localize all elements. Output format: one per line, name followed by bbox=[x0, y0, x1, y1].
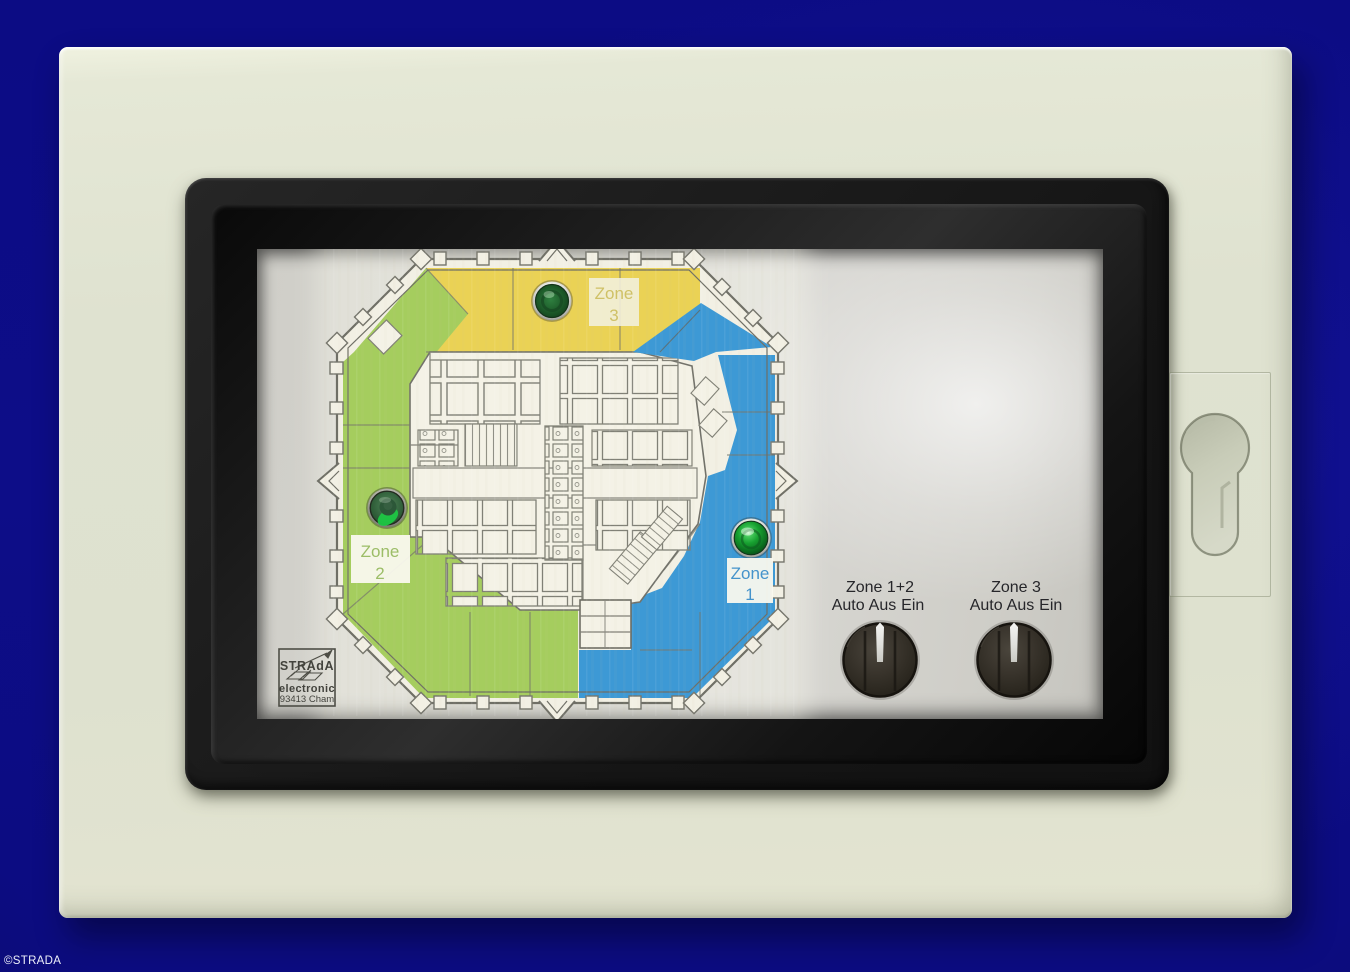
svg-text:Zone: Zone bbox=[595, 284, 634, 303]
svg-text:Zone: Zone bbox=[361, 542, 400, 561]
svg-text:93413 Cham: 93413 Cham bbox=[280, 694, 334, 705]
svg-text:1: 1 bbox=[745, 585, 754, 604]
svg-text:Zone 3: Zone 3 bbox=[991, 579, 1041, 596]
svg-text:Zone: Zone bbox=[731, 564, 770, 583]
svg-text:Auto Aus Ein: Auto Aus Ein bbox=[832, 597, 925, 614]
svg-text:Zone 1+2: Zone 1+2 bbox=[846, 579, 914, 596]
svg-text:2: 2 bbox=[375, 564, 384, 583]
svg-text:STRAdA: STRAdA bbox=[280, 659, 334, 673]
svg-text:3: 3 bbox=[609, 306, 618, 325]
svg-text:Auto Aus Ein: Auto Aus Ein bbox=[970, 597, 1063, 614]
